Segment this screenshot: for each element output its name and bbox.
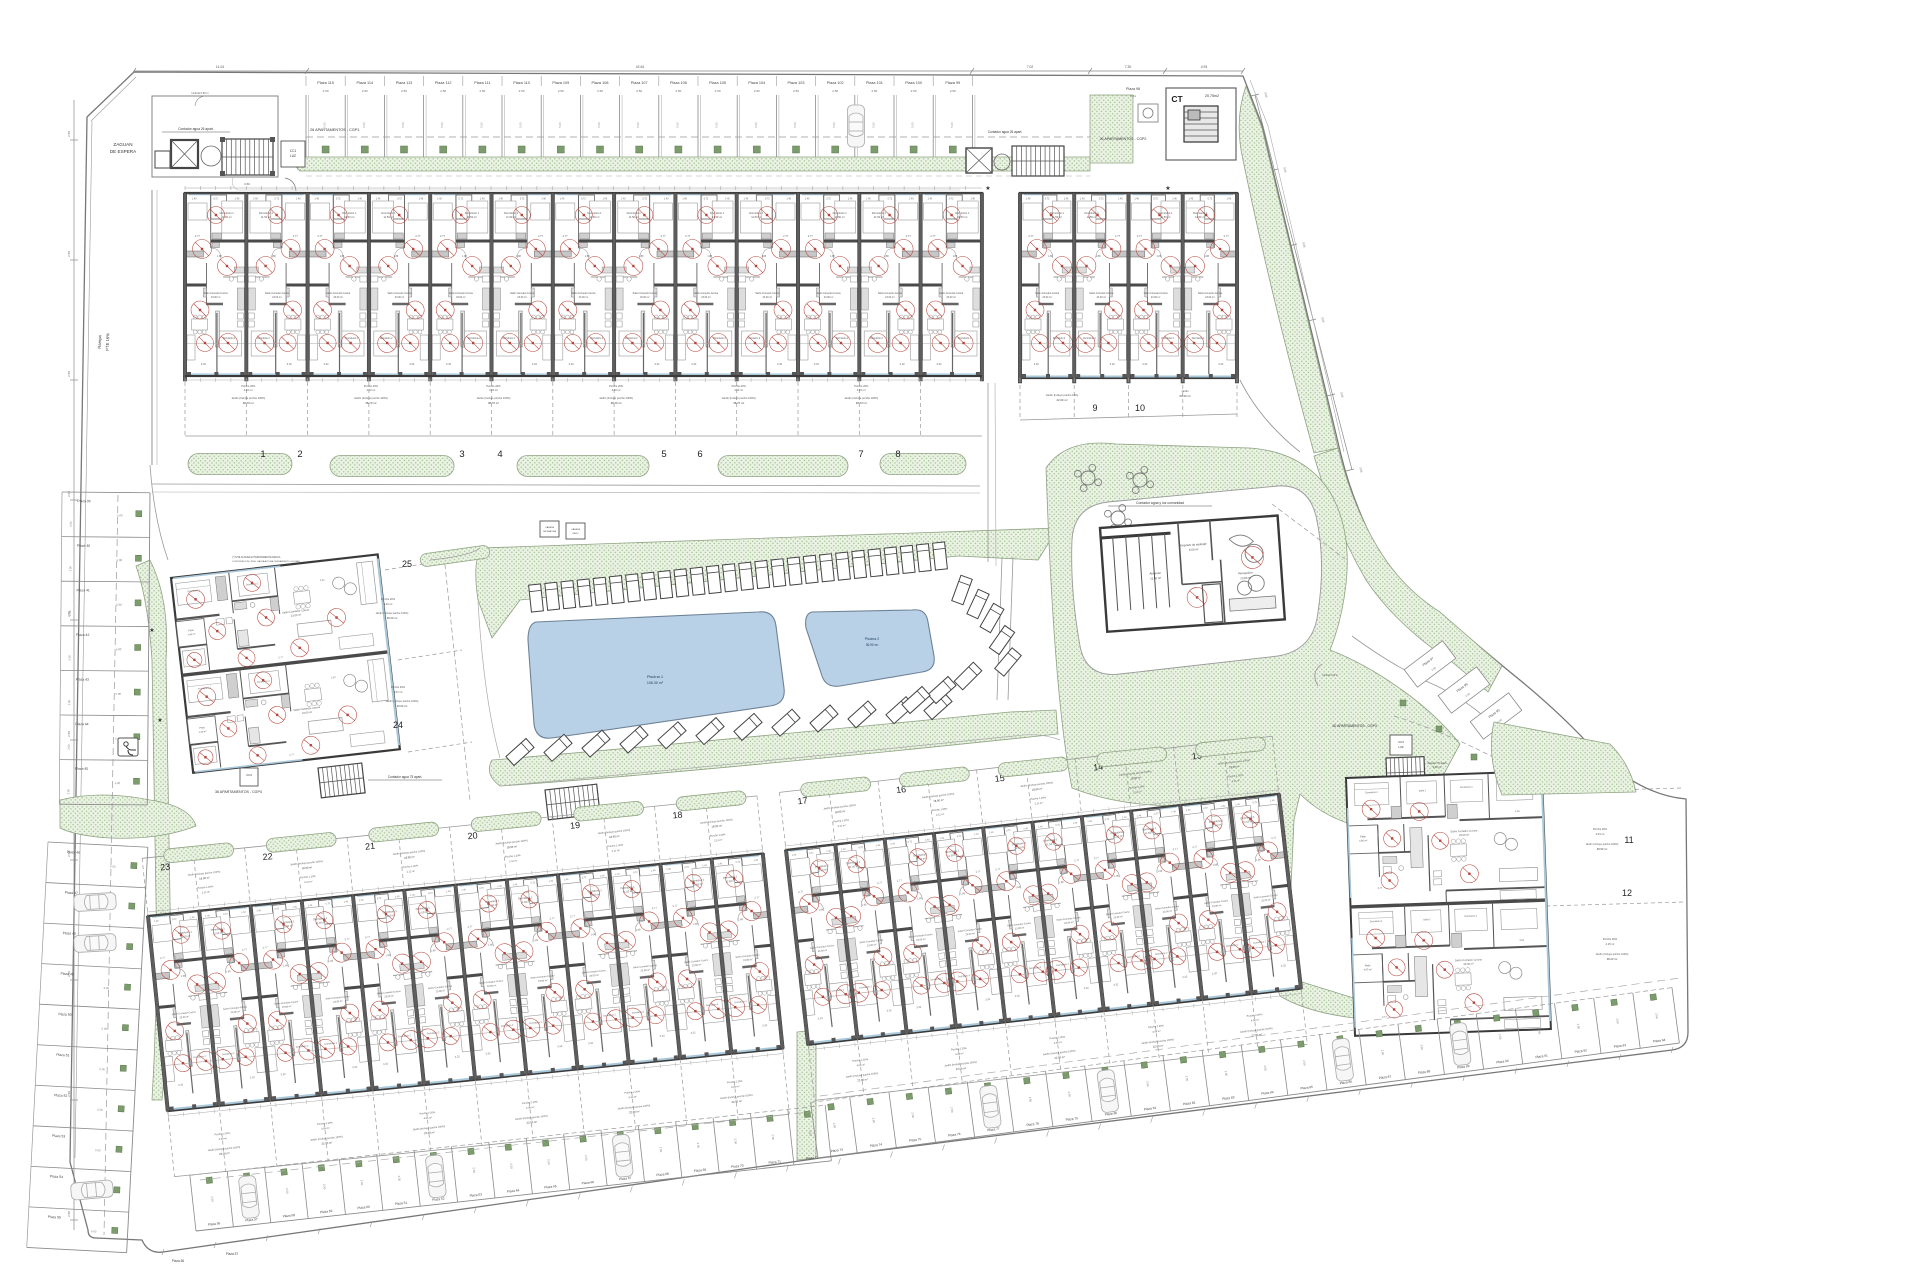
- svg-text:2.50: 2.50: [479, 89, 485, 93]
- svg-text:20: 20: [467, 830, 478, 841]
- svg-text:Porche 20%: Porche 20%: [391, 685, 406, 689]
- svg-text:Baño 2: Baño 2: [1419, 789, 1427, 792]
- svg-text:Plaza 47: Plaza 47: [65, 891, 79, 896]
- svg-text:2.77: 2.77: [1382, 1016, 1387, 1019]
- svg-text:5.00: 5.00: [558, 122, 562, 128]
- svg-text:Dormitorio 2: Dormitorio 2: [468, 337, 481, 340]
- svg-text:2.50: 2.50: [1263, 1065, 1268, 1071]
- svg-text:0.72: 0.72: [275, 199, 280, 201]
- svg-text:Umbral 0.50 m: Umbral 0.50 m: [191, 91, 208, 95]
- svg-text:3.32: 3.32: [178, 1082, 184, 1087]
- svg-text:2.50: 2.50: [1067, 1091, 1072, 1097]
- svg-text:2.50: 2.50: [950, 1107, 955, 1113]
- svg-text:2: 2: [297, 449, 302, 460]
- svg-text:0.72: 0.72: [949, 199, 954, 201]
- svg-text:36.90 m²: 36.90 m²: [866, 643, 879, 647]
- svg-text:Plaza 50: Plaza 50: [58, 1012, 72, 1017]
- svg-text:2.50: 2.50: [472, 1167, 477, 1173]
- svg-text:Plaza 39: Plaza 39: [77, 499, 90, 503]
- svg-text:23.00 m²: 23.00 m²: [1097, 296, 1107, 299]
- svg-text:21: 21: [365, 841, 376, 852]
- svg-text:2.50: 2.50: [1537, 1029, 1542, 1035]
- svg-text:Porche 20%: Porche 20%: [1603, 937, 1618, 941]
- svg-text:Dormitorio 1: Dormitorio 1: [465, 211, 480, 215]
- svg-text:1.88: 1.88: [585, 255, 590, 258]
- svg-text:2.50: 2.50: [519, 89, 525, 93]
- svg-text:26 APARTAMENTOS - CGP1: 26 APARTAMENTOS - CGP1: [310, 128, 360, 132]
- svg-text:2.50: 2.50: [659, 1147, 664, 1153]
- svg-text:2.50: 2.50: [67, 744, 71, 750]
- svg-text:★: ★: [149, 627, 154, 634]
- svg-text:Porche 20%: Porche 20%: [609, 384, 624, 388]
- svg-text:4D APARTAMENTOS - CGP3: 4D APARTAMENTOS - CGP3: [1332, 724, 1377, 728]
- svg-text:★: ★: [1165, 185, 1170, 192]
- svg-text:0.72: 0.72: [765, 199, 770, 201]
- svg-text:5.00: 5.00: [362, 122, 366, 128]
- svg-text:11.04: 11.04: [216, 65, 224, 69]
- svg-text:1.40: 1.40: [603, 199, 608, 201]
- svg-text:4: 4: [497, 449, 502, 460]
- svg-text:2.50: 2.50: [67, 131, 71, 137]
- svg-text:CASETA: CASETA: [571, 528, 580, 531]
- svg-text:2.50: 2.50: [793, 89, 799, 93]
- svg-text:2.77: 2.77: [906, 234, 912, 238]
- svg-text:23.00 m²: 23.00 m²: [1151, 296, 1161, 299]
- svg-text:Plaza 105: Plaza 105: [709, 81, 726, 85]
- svg-text:Plaza 41: Plaza 41: [77, 588, 90, 592]
- svg-text:3.32: 3.32: [569, 362, 575, 366]
- svg-text:Plaza 99: Plaza 99: [945, 81, 960, 85]
- svg-text:5: 5: [661, 449, 666, 460]
- svg-text:2.50: 2.50: [754, 89, 760, 93]
- svg-text:4.07 m²: 4.07 m²: [394, 690, 403, 694]
- svg-text:7: 7: [858, 449, 863, 460]
- svg-text:Almacén: Almacén: [1149, 571, 1161, 576]
- svg-text:1.40: 1.40: [725, 199, 730, 201]
- svg-text:1.88: 1.88: [462, 255, 467, 258]
- svg-text:2.50: 2.50: [397, 1175, 402, 1181]
- svg-text:2.50: 2.50: [1380, 1049, 1385, 1055]
- svg-text:Rampa: Rampa: [97, 334, 102, 348]
- svg-text:Contador agua 75 apart.: Contador agua 75 apart.: [388, 775, 423, 779]
- svg-text:1.88: 1.88: [707, 255, 712, 258]
- svg-text:4.10 m²: 4.10 m²: [384, 602, 393, 606]
- svg-text:5.00: 5.00: [115, 692, 121, 696]
- svg-text:Umbral 0.05 m: Umbral 0.05 m: [1322, 674, 1338, 677]
- svg-text:1.88: 1.88: [394, 255, 399, 258]
- svg-text:5.00: 5.00: [97, 1108, 103, 1112]
- svg-text:2.50: 2.50: [1145, 1081, 1150, 1087]
- svg-text:1.40: 1.40: [480, 199, 485, 201]
- svg-text:2.77: 2.77: [783, 234, 789, 238]
- svg-text:1.40: 1.40: [1080, 199, 1085, 201]
- svg-text:11.50 m²: 11.50 m²: [506, 215, 516, 219]
- svg-text:10: 10: [1135, 403, 1145, 413]
- svg-text:Jardín (Incluye porche 100%): Jardín (Incluye porche 100%): [386, 700, 419, 703]
- svg-text:Salón-Comedor-Cocina: Salón-Comedor-Cocina: [1144, 292, 1169, 295]
- svg-text:5.00: 5.00: [911, 122, 915, 128]
- svg-text:Salón-Comedor-Cocina: Salón-Comedor-Cocina: [571, 292, 596, 295]
- svg-text:Dormitorio 1: Dormitorio 1: [710, 211, 725, 215]
- svg-text:CC3: CC3: [1398, 740, 1404, 744]
- svg-text:5.00: 5.00: [871, 122, 875, 128]
- svg-text:38.70 m²: 38.70 m²: [243, 401, 254, 405]
- svg-text:1.40: 1.40: [296, 199, 301, 201]
- svg-text:Plaza 55: Plaza 55: [48, 1215, 62, 1220]
- svg-text:Plaza 40: Plaza 40: [77, 544, 90, 548]
- svg-text:36.00 m²: 36.00 m²: [387, 616, 398, 620]
- svg-text:Plaza 114: Plaza 114: [356, 81, 373, 85]
- svg-text:5.00: 5.00: [479, 122, 483, 128]
- svg-text:Dormitorio 2: Dormitorio 2: [345, 337, 358, 340]
- svg-text:2.50: 2.50: [360, 1180, 365, 1186]
- svg-text:2.50: 2.50: [871, 89, 877, 93]
- svg-text:1.40: 1.40: [1172, 199, 1177, 201]
- svg-text:11.50 m²: 11.50 m²: [467, 215, 477, 219]
- svg-text:Salón-Comedor-Cocina: Salón-Comedor-Cocina: [817, 292, 842, 295]
- svg-text:1.40: 1.40: [1118, 199, 1123, 201]
- svg-text:1.40: 1.40: [787, 199, 792, 201]
- svg-text:11.50 m²: 11.50 m²: [1195, 215, 1205, 219]
- svg-text:3.32: 3.32: [287, 362, 293, 366]
- svg-text:7.02: 7.02: [1027, 65, 1034, 69]
- svg-text:23.00 m²: 23.00 m²: [824, 296, 834, 299]
- svg-text:7.30: 7.30: [1125, 65, 1132, 69]
- svg-text:Jardín (Incluye porche 100%): Jardín (Incluye porche 100%): [1586, 843, 1619, 846]
- svg-text:Jardín (Incluye porche 100%): Jardín (Incluye porche 100%): [231, 396, 265, 400]
- svg-text:3.32: 3.32: [814, 362, 820, 366]
- svg-text:1.40: 1.40: [805, 199, 810, 201]
- svg-text:11.50 m²: 11.50 m²: [589, 215, 599, 219]
- svg-text:2.50: 2.50: [67, 251, 71, 257]
- svg-text:11.50 m²: 11.50 m²: [874, 215, 884, 219]
- svg-text:2.50: 2.50: [69, 521, 73, 527]
- svg-text:0.72: 0.72: [888, 199, 893, 201]
- svg-text:3.32: 3.32: [691, 362, 697, 366]
- svg-text:LUZ: LUZ: [290, 154, 296, 158]
- svg-text:3.32: 3.32: [900, 362, 906, 366]
- svg-text:1.40: 1.40: [1227, 199, 1232, 201]
- svg-text:1.88: 1.88: [1048, 255, 1053, 258]
- svg-text:23: 23: [160, 862, 171, 873]
- svg-text:Patio: Patio: [1360, 835, 1366, 838]
- svg-text:Salón-Comedor-Cocina: Salón-Comedor-Cocina: [694, 292, 719, 295]
- svg-text:2.77: 2.77: [195, 234, 201, 238]
- svg-text:2.50: 2.50: [1185, 1076, 1190, 1082]
- svg-text:23.00 m²: 23.00 m²: [1042, 296, 1052, 299]
- svg-text:CC1: CC1: [290, 149, 297, 153]
- svg-text:1.40: 1.40: [498, 199, 503, 201]
- svg-text:9.00 m²: 9.00 m²: [1189, 547, 1199, 552]
- svg-text:1.88: 1.88: [1204, 255, 1209, 258]
- svg-text:0.72: 0.72: [336, 199, 341, 201]
- svg-text:Plaza 109: Plaza 109: [552, 81, 569, 85]
- svg-text:60.40 m²: 60.40 m²: [1179, 394, 1190, 398]
- svg-text:2.50: 2.50: [1576, 1023, 1581, 1029]
- svg-text:Jardín (Incluye porche 100%): Jardín (Incluye porche 100%): [599, 396, 633, 400]
- svg-text:Contador agua 26 apart.: Contador agua 26 apart.: [178, 127, 214, 131]
- svg-text:1.40: 1.40: [928, 199, 933, 201]
- svg-text:5.00: 5.00: [117, 513, 123, 517]
- svg-text:1.88: 1.88: [884, 255, 889, 258]
- svg-text:1.88: 1.88: [271, 255, 276, 258]
- svg-text:Dormitorio 1: Dormitorio 1: [220, 211, 235, 215]
- svg-text:1.40: 1.40: [1064, 199, 1069, 201]
- svg-text:1.40: 1.40: [315, 199, 320, 201]
- svg-text:11.50 m²: 11.50 m²: [344, 215, 354, 219]
- svg-text:Jardín (Incluye porche 100%): Jardín (Incluye porche 100%): [477, 396, 511, 400]
- svg-text:Piscina 2: Piscina 2: [865, 637, 880, 641]
- svg-text:Porche 20%: Porche 20%: [381, 597, 396, 601]
- svg-text:1: 1: [260, 449, 265, 460]
- svg-text:11.50 m²: 11.50 m²: [1052, 215, 1062, 219]
- svg-text:3.32: 3.32: [280, 1072, 286, 1077]
- svg-text:Plaza 106: Plaza 106: [670, 81, 687, 85]
- svg-text:11.50 m²: 11.50 m²: [712, 215, 722, 219]
- svg-text:1.40: 1.40: [848, 199, 853, 201]
- svg-text:3.32: 3.32: [250, 1075, 256, 1080]
- svg-text:3: 3: [459, 449, 464, 460]
- svg-text:11.50 m²: 11.50 m²: [1160, 215, 1170, 219]
- svg-text:1.88: 1.88: [953, 255, 958, 258]
- svg-text:2.50: 2.50: [1028, 1096, 1033, 1102]
- svg-text:Salón-Comedor-Cocina: Salón-Comedor-Cocina: [265, 292, 290, 295]
- svg-text:0.72: 0.72: [642, 199, 647, 201]
- svg-text:2.50: 2.50: [950, 89, 956, 93]
- svg-text:20,75m2: 20,75m2: [1205, 94, 1219, 98]
- svg-text:23.00 m²: 23.00 m²: [1205, 296, 1215, 299]
- svg-text:1.40: 1.40: [1134, 199, 1139, 201]
- svg-text:2.50: 2.50: [1302, 1060, 1307, 1066]
- svg-text:4.10 m²: 4.10 m²: [489, 388, 498, 392]
- svg-text:5.00: 5.00: [101, 1026, 107, 1030]
- svg-text:11.50 m²: 11.50 m²: [383, 215, 393, 219]
- svg-text:Salón-Comedor-Cocina: Salón-Comedor-Cocina: [326, 292, 351, 295]
- svg-text:0.72: 0.72: [213, 199, 218, 201]
- svg-text:Salón-Comedor-Cocina: Salón-Comedor-Cocina: [1089, 292, 1114, 295]
- svg-text:2.50: 2.50: [210, 1196, 215, 1202]
- svg-text:3.32: 3.32: [654, 362, 660, 366]
- svg-text:4.10 m²: 4.10 m²: [612, 388, 621, 392]
- svg-text:Plaza 111: Plaza 111: [474, 81, 490, 85]
- svg-text:26 APARTAMENTOS - CGP2: 26 APARTAMENTOS - CGP2: [1100, 137, 1147, 141]
- svg-text:2.77: 2.77: [160, 955, 166, 960]
- svg-text:Plaza 98: Plaza 98: [1126, 87, 1140, 91]
- svg-text:Porche 20%: Porche 20%: [1593, 827, 1608, 831]
- svg-text:0.72: 0.72: [826, 199, 831, 201]
- svg-text:5.00: 5.00: [115, 781, 121, 785]
- svg-text:Plaza 49: Plaza 49: [60, 972, 74, 977]
- svg-text:5.00: 5.00: [110, 864, 116, 868]
- svg-text:Plaza 45: Plaza 45: [75, 767, 88, 771]
- svg-text:2.50: 2.50: [1420, 1044, 1425, 1050]
- svg-text:18: 18: [672, 809, 683, 820]
- svg-text:1.40: 1.40: [376, 199, 381, 201]
- svg-text:Dormitorio 2: Dormitorio 2: [836, 337, 849, 340]
- svg-text:1.40: 1.40: [437, 199, 442, 201]
- svg-text:1.40: 1.40: [541, 199, 546, 201]
- svg-text:2.50: 2.50: [362, 89, 368, 93]
- svg-text:2.50: 2.50: [509, 1163, 514, 1169]
- svg-text:Porche 20%: Porche 20%: [486, 384, 501, 388]
- svg-text:3.32: 3.32: [1142, 362, 1148, 366]
- svg-text:2.50: 2.50: [597, 89, 603, 93]
- svg-text:0.72: 0.72: [520, 199, 525, 201]
- svg-text:Baño 2: Baño 2: [1423, 918, 1431, 921]
- svg-text:19: 19: [570, 820, 581, 831]
- svg-text:RIEGO: RIEGO: [573, 533, 579, 535]
- svg-text:ZAGUAN: ZAGUAN: [113, 142, 132, 147]
- svg-text:22: 22: [262, 851, 273, 862]
- svg-text:0.72: 0.72: [704, 199, 709, 201]
- svg-text:1.88: 1.88: [639, 255, 644, 258]
- svg-text:1.88: 1.88: [761, 255, 766, 258]
- svg-text:Dormitorio 2: Dormitorio 2: [223, 337, 236, 340]
- svg-text:1.40: 1.40: [235, 199, 240, 201]
- svg-text:1.88: 1.88: [217, 255, 222, 258]
- svg-text:CONTINUACION LINDE, HASTA ALTU: CONTINUACION LINDE, HASTA ALTURA CERRAMI…: [232, 560, 300, 563]
- svg-text:1.40: 1.40: [744, 199, 749, 201]
- svg-text:2.50: 2.50: [871, 1117, 876, 1123]
- svg-text:5.00: 5.00: [116, 647, 122, 651]
- svg-text:Porche 20%: Porche 20%: [241, 384, 256, 388]
- svg-text:4.60 m²: 4.60 m²: [1359, 839, 1367, 842]
- svg-text:2.77: 2.77: [242, 947, 248, 952]
- svg-text:2.50: 2.50: [1654, 1013, 1659, 1019]
- svg-text:2.77: 2.77: [1028, 234, 1034, 238]
- svg-text:5.00: 5.00: [793, 122, 797, 128]
- svg-text:Dormitorio 2: Dormitorio 2: [748, 337, 761, 340]
- svg-text:36 APARTAMENTOS - CGP4: 36 APARTAMENTOS - CGP4: [215, 790, 262, 794]
- svg-text:23.00 m²: 23.00 m²: [395, 296, 405, 299]
- svg-text:Dormitorio 1: Dormitorio 1: [749, 211, 764, 215]
- svg-text:4.10 m²: 4.10 m²: [367, 388, 376, 392]
- svg-text:Plaza 100: Plaza 100: [905, 81, 922, 85]
- svg-text:2.50: 2.50: [322, 1184, 327, 1190]
- svg-text:4.04 m²: 4.04 m²: [1596, 832, 1605, 836]
- svg-text:3.32: 3.32: [1034, 362, 1040, 366]
- svg-text:23.00 m²: 23.00 m²: [272, 296, 282, 299]
- svg-text:38.70 m²: 38.70 m²: [611, 401, 622, 405]
- svg-text:Plaza 107: Plaza 107: [631, 81, 648, 85]
- svg-text:0.72: 0.72: [1153, 199, 1158, 201]
- svg-text:11.50 m²: 11.50 m²: [629, 215, 639, 219]
- svg-text:Porche 20%: Porche 20%: [854, 384, 869, 388]
- svg-text:Dormitorio 1: Dormitorio 1: [1193, 211, 1208, 215]
- svg-text:1.40: 1.40: [970, 199, 975, 201]
- svg-text:1.40: 1.40: [1189, 199, 1194, 201]
- svg-text:2.50: 2.50: [1498, 1034, 1503, 1040]
- svg-text:23.00 m²: 23.00 m²: [885, 296, 895, 299]
- svg-text:Jardín (Incluye porche 100%): Jardín (Incluye porche 100%): [722, 396, 756, 400]
- svg-text:5.00: 5.00: [104, 986, 110, 990]
- svg-text:2.77: 2.77: [262, 945, 268, 950]
- svg-text:LUZ: LUZ: [1398, 745, 1404, 749]
- svg-text:23.00 m²: 23.00 m²: [1459, 833, 1470, 837]
- svg-text:11.50 m²: 11.50 m²: [835, 215, 845, 219]
- svg-text:Dormitorio 1: Dormitorio 1: [381, 211, 396, 215]
- svg-text:2.77: 2.77: [440, 234, 446, 238]
- svg-text:2.50: 2.50: [771, 1134, 776, 1140]
- svg-text:5.00: 5.00: [323, 122, 327, 128]
- svg-text:Porche 20%: Porche 20%: [732, 384, 747, 388]
- svg-text:2.50: 2.50: [440, 89, 446, 93]
- svg-text:23.00 m²: 23.00 m²: [579, 296, 589, 299]
- svg-text:Plaza 52: Plaza 52: [54, 1093, 68, 1098]
- svg-text:Plaza 104: Plaza 104: [748, 81, 765, 85]
- svg-text:1.88: 1.88: [340, 255, 345, 258]
- svg-text:11.50 m²: 11.50 m²: [222, 215, 232, 219]
- svg-text:★: ★: [157, 717, 162, 724]
- svg-text:Dormitorio 1: Dormitorio 1: [627, 211, 642, 215]
- svg-text:Dormitorio 2: Dormitorio 2: [257, 337, 270, 340]
- svg-text:Plaza 46: Plaza 46: [67, 850, 81, 855]
- svg-text:Jardín: Jardín: [1181, 389, 1189, 393]
- svg-text:2.77: 2.77: [672, 903, 678, 908]
- svg-text:20.60 m²: 20.60 m²: [397, 704, 408, 708]
- svg-text:Dormitorio 1: Dormitorio 1: [1158, 211, 1173, 215]
- svg-text:Dormitorio 2: Dormitorio 2: [713, 337, 726, 340]
- svg-text:3.60: 3.60: [244, 182, 250, 186]
- svg-text:Dormitorio 1: Dormitorio 1: [504, 211, 519, 215]
- svg-text:1.88: 1.88: [1096, 255, 1101, 258]
- svg-text:3.32: 3.32: [1218, 362, 1224, 366]
- svg-text:13.00 m²: 13.00 m²: [1150, 576, 1161, 581]
- svg-text:2.50: 2.50: [911, 1112, 916, 1118]
- svg-text:2.50: 2.50: [733, 1138, 738, 1144]
- svg-text:5.00: 5.00: [675, 122, 679, 128]
- svg-text:Plaza 56: Plaza 56: [172, 1259, 185, 1263]
- svg-text:2.77: 2.77: [685, 234, 691, 238]
- svg-text:DE ESPERA: DE ESPERA: [110, 149, 137, 154]
- svg-text:23.00 m²: 23.00 m²: [763, 296, 773, 299]
- svg-text:3.32: 3.32: [201, 362, 207, 366]
- svg-text:2.50: 2.50: [832, 1123, 837, 1129]
- svg-text:11.50 m²: 11.50 m²: [1087, 215, 1097, 219]
- svg-text:CASETA: CASETA: [545, 526, 554, 529]
- svg-text:★: ★: [985, 185, 990, 192]
- svg-text:5.00: 5.00: [91, 1229, 97, 1233]
- svg-text:2.77: 2.77: [563, 234, 569, 238]
- svg-text:Dormitorio 1: Dormitorio 1: [1050, 211, 1065, 215]
- svg-text:3.32: 3.32: [659, 1033, 665, 1038]
- svg-text:5.00: 5.00: [597, 122, 601, 128]
- svg-text:22.00 m²: 22.00 m²: [1056, 398, 1067, 402]
- svg-text:2.77: 2.77: [1224, 234, 1230, 238]
- svg-text:23.00 m²: 23.00 m²: [640, 296, 650, 299]
- svg-text:3.32: 3.32: [1110, 362, 1116, 366]
- svg-text:Dormitorio 1: Dormitorio 1: [1465, 914, 1478, 917]
- svg-text:Salón-Comedor-Cocina: Salón-Comedor-Cocina: [204, 292, 229, 295]
- svg-text:0.72: 0.72: [397, 199, 402, 201]
- svg-text:Plaza 108: Plaza 108: [592, 81, 609, 85]
- svg-text:Salón-Comedor-Cocina: Salón-Comedor-Cocina: [510, 292, 535, 295]
- svg-text:23.00 m²: 23.00 m²: [211, 296, 221, 299]
- svg-text:3.51: 3.51: [1130, 94, 1136, 98]
- svg-text:Plaza 43: Plaza 43: [76, 678, 89, 682]
- svg-text:Dormitorio 2: Dormitorio 2: [1161, 337, 1174, 340]
- svg-text:1.40: 1.40: [253, 199, 258, 201]
- svg-text:2.50: 2.50: [66, 788, 70, 794]
- svg-text:5.00: 5.00: [99, 1067, 105, 1071]
- svg-text:Piscina 1: Piscina 1: [647, 674, 664, 679]
- svg-text:Jardín (Incluye porche 100%): Jardín (Incluye porche 100%): [844, 396, 878, 400]
- svg-text:4.10 m²: 4.10 m²: [734, 388, 743, 392]
- svg-text:Patio: Patio: [1365, 964, 1371, 967]
- svg-text:3.32: 3.32: [588, 1041, 594, 1046]
- svg-text:1.88: 1.88: [1157, 255, 1162, 258]
- svg-text:Salón-Comedor-Cocina: Salón-Comedor-Cocina: [1035, 292, 1060, 295]
